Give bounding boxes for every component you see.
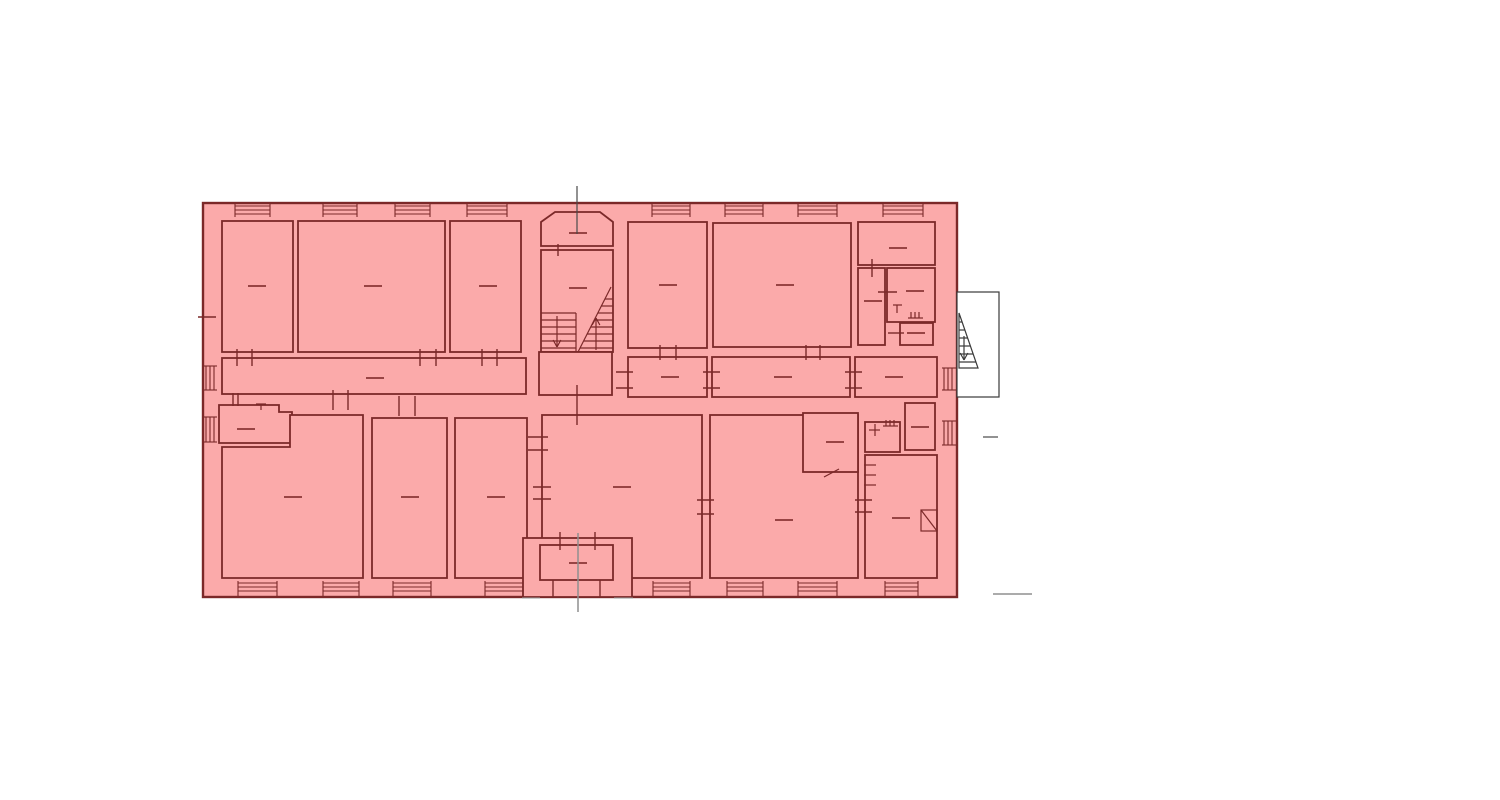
exterior-structures <box>957 292 999 397</box>
stairwell <box>541 250 613 352</box>
wc-lobby <box>858 268 885 345</box>
room-top-6 <box>858 222 935 265</box>
corridor <box>222 358 526 394</box>
room-bottom-2 <box>372 418 447 578</box>
stair-hall <box>539 352 612 395</box>
wc-small-room <box>900 323 933 345</box>
floorplan-drawing <box>0 0 1500 800</box>
room-bottom-3 <box>455 418 527 578</box>
floorplan-page <box>0 0 1500 800</box>
